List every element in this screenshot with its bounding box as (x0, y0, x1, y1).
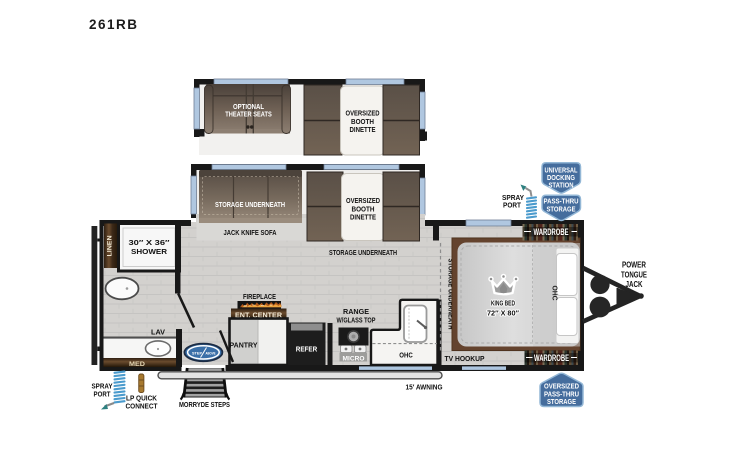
svg-text:STEP: STEP (192, 351, 203, 355)
svg-text:261RB: 261RB (89, 17, 139, 32)
svg-text:PORT: PORT (503, 201, 522, 210)
svg-text:CONNECT: CONNECT (126, 404, 159, 411)
svg-text:LINEN: LINEN (107, 235, 114, 257)
svg-text:JACK: JACK (626, 279, 643, 289)
svg-text:KING BED: KING BED (491, 301, 515, 308)
svg-text:SPRAY: SPRAY (92, 384, 113, 391)
svg-text:DINETTE: DINETTE (350, 125, 376, 134)
svg-text:ABOVE: ABOVE (206, 351, 216, 355)
svg-text:THEATER SEATS: THEATER SEATS (225, 110, 272, 119)
svg-text:72″ X 80″: 72″ X 80″ (487, 311, 520, 318)
svg-text:LP QUICK: LP QUICK (126, 396, 157, 403)
svg-text:PANTRY: PANTRY (230, 340, 258, 349)
svg-text:TONGUE: TONGUE (621, 270, 647, 280)
svg-text:POWER: POWER (622, 260, 646, 270)
svg-text:STORAGE: STORAGE (547, 397, 576, 406)
svg-text:REFER: REFER (296, 345, 318, 354)
svg-text:DINETTE: DINETTE (350, 213, 376, 222)
svg-text:STORAGE UNDERNEATH: STORAGE UNDERNEATH (329, 248, 397, 257)
svg-text:LAV: LAV (151, 328, 165, 337)
svg-text:W/GLASS TOP: W/GLASS TOP (337, 316, 376, 325)
svg-text:MICRO: MICRO (343, 355, 365, 362)
svg-text:SHOWER: SHOWER (131, 247, 168, 256)
svg-text:MED: MED (129, 361, 145, 368)
svg-text:STORAGE: STORAGE (547, 204, 576, 213)
svg-text:STATION: STATION (549, 180, 574, 189)
svg-text:PORT: PORT (94, 392, 112, 399)
svg-text:TV HOOKUP: TV HOOKUP (445, 354, 485, 363)
svg-text:WARDROBE: WARDROBE (534, 353, 569, 363)
svg-text:30″ X 36″: 30″ X 36″ (129, 238, 171, 247)
svg-text:OHC: OHC (399, 352, 413, 359)
svg-text:15′ AWNING: 15′ AWNING (406, 383, 443, 392)
svg-text:FIREPLACE: FIREPLACE (243, 292, 276, 301)
svg-text:STORAGE UNDERNEATH: STORAGE UNDERNEATH (215, 200, 285, 209)
svg-text:WARDROBE: WARDROBE (534, 227, 569, 237)
svg-text:OHC: OHC (551, 286, 560, 301)
svg-text:MORRYDE STEPS: MORRYDE STEPS (179, 400, 230, 409)
svg-text:JACK KNIFE SOFA: JACK KNIFE SOFA (224, 228, 277, 237)
